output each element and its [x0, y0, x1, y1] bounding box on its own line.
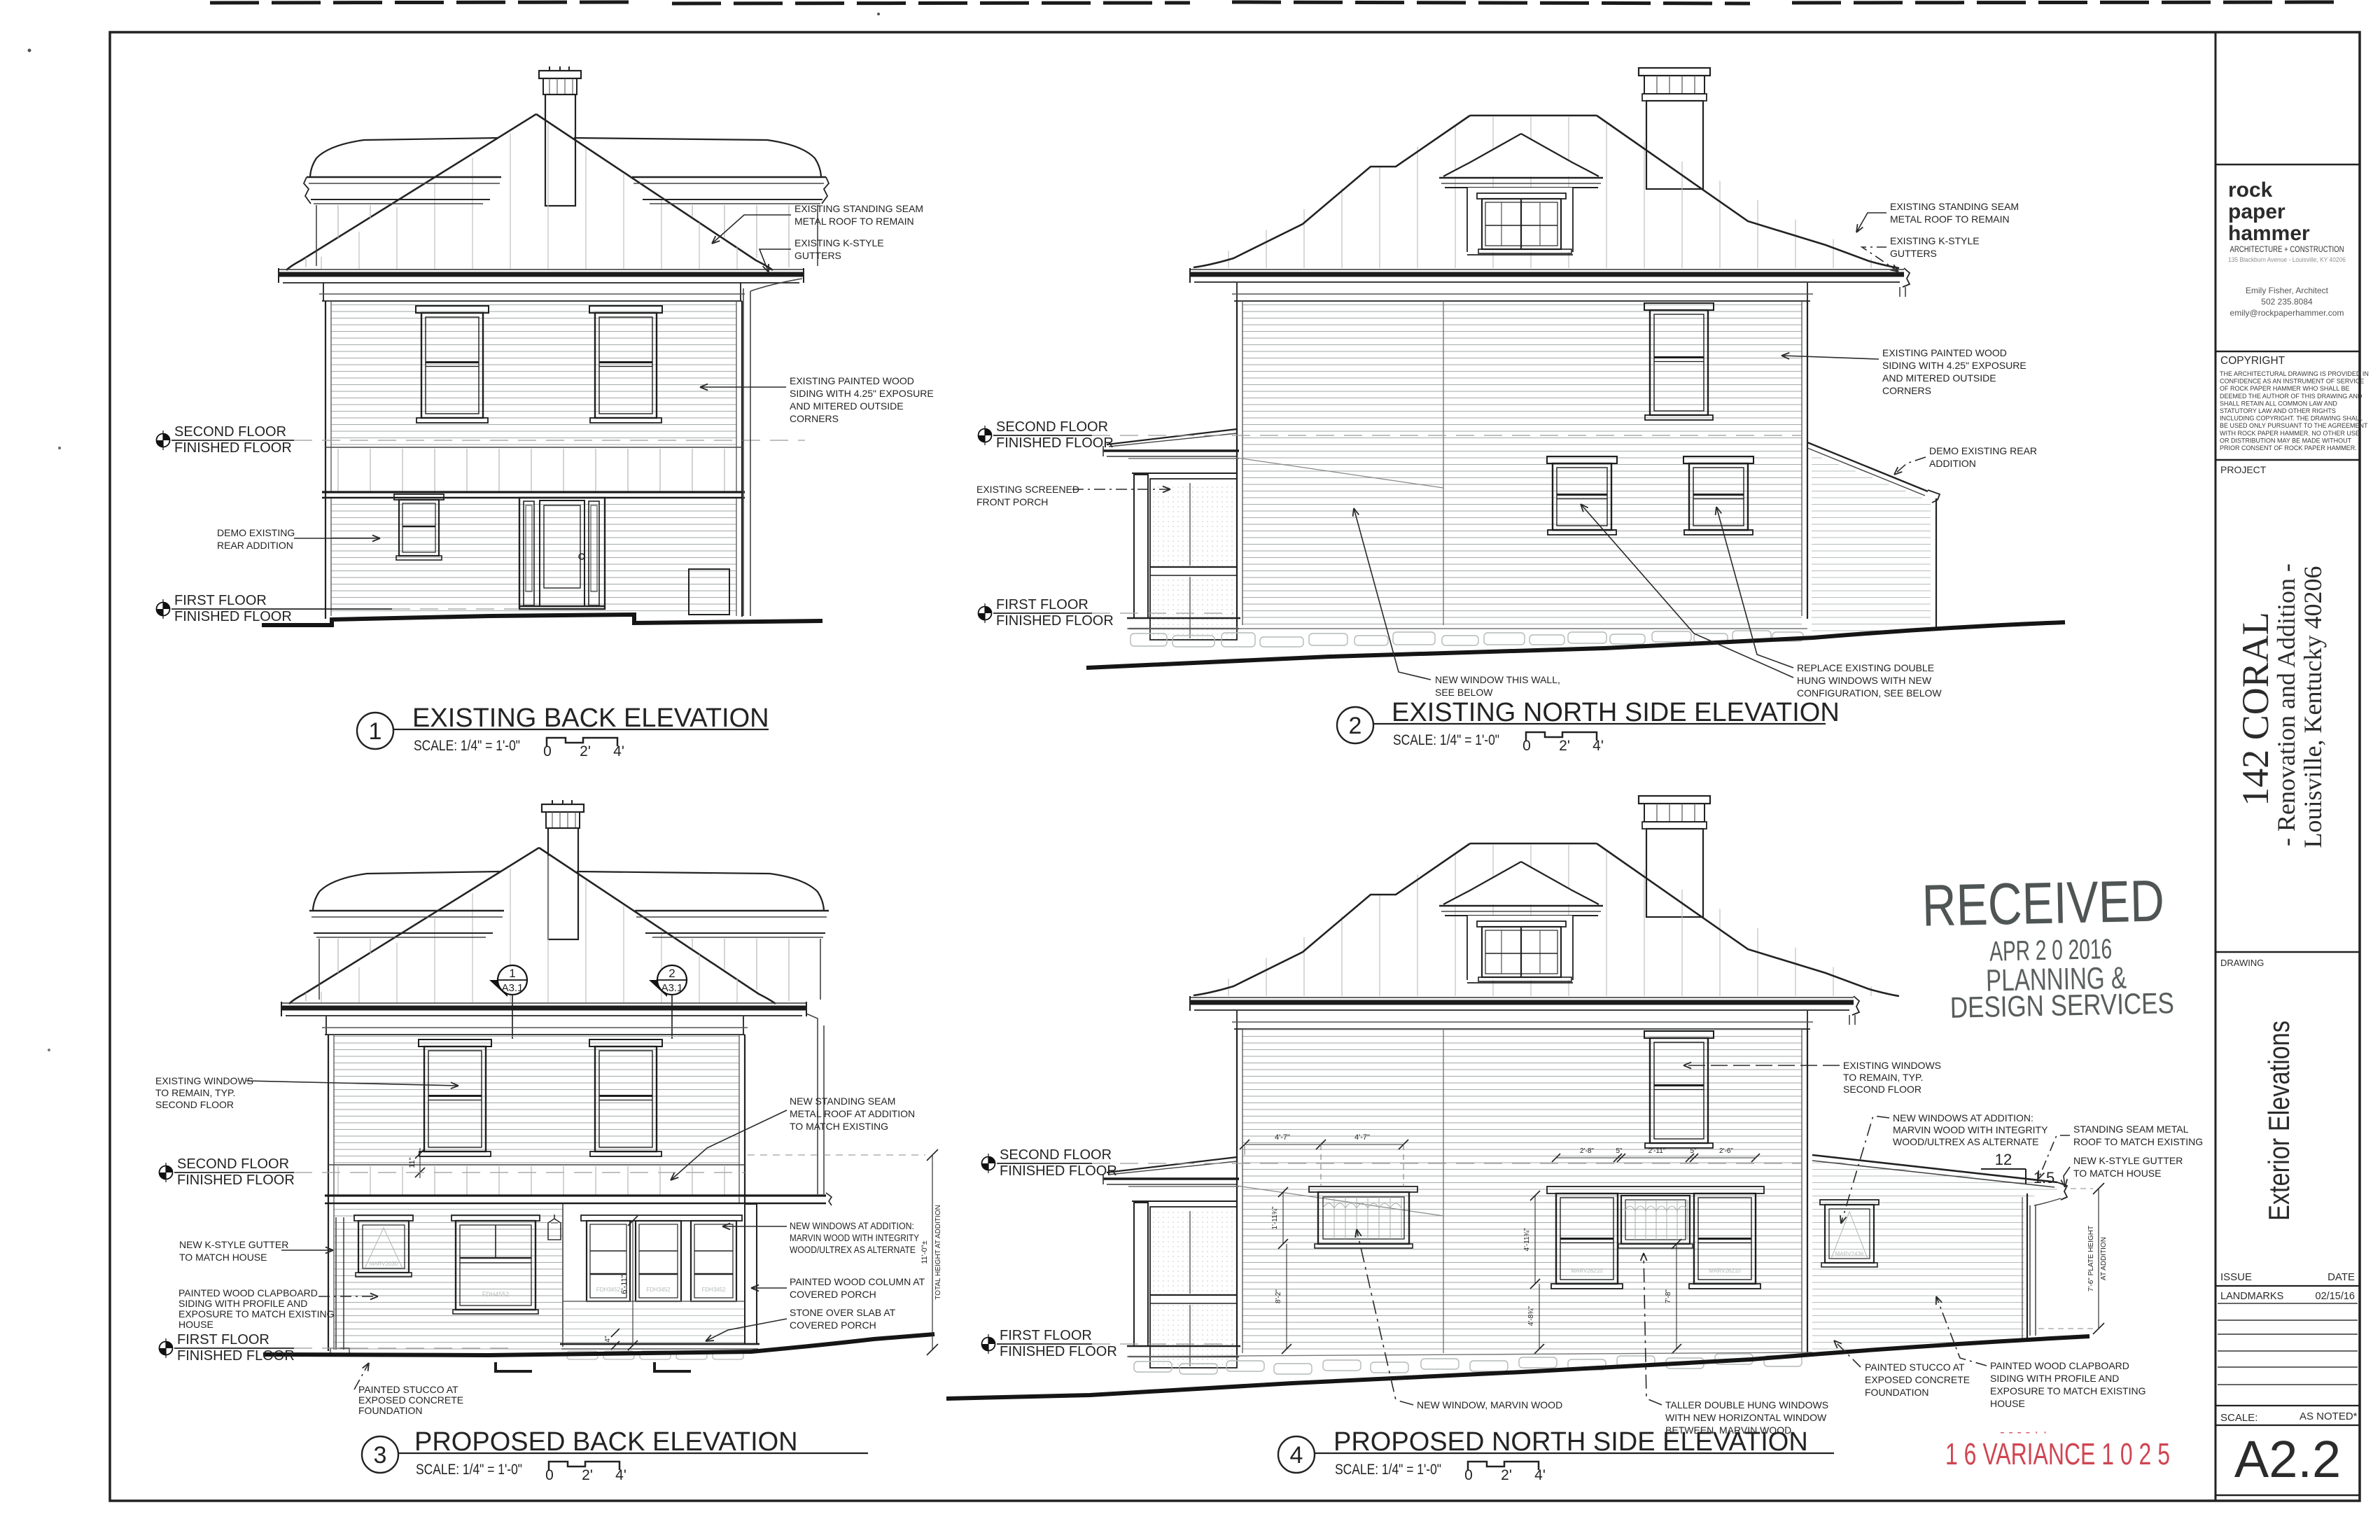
svg-text:4'-7": 4'-7": [1275, 1133, 1290, 1142]
svg-text:FIRST FLOOR: FIRST FLOOR: [1000, 1328, 1092, 1343]
svg-text:4': 4': [1534, 1467, 1546, 1483]
svg-text:AT ADDITION: AT ADDITION: [2100, 1237, 2108, 1280]
svg-text:EXPOSURE TO MATCH EXISTING: EXPOSURE TO MATCH EXISTING: [1990, 1385, 2145, 1396]
svg-text:NEW K-STYLE GUTTER: NEW K-STYLE GUTTER: [2073, 1155, 2183, 1166]
svg-text:FDH3452: FDH3452: [646, 1287, 671, 1293]
svg-text:FIRST FLOOR: FIRST FLOOR: [996, 597, 1088, 612]
svg-text:NEW WINDOW THIS WALL,: NEW WINDOW THIS WALL,: [1435, 674, 1560, 685]
svg-text:ROOF TO MATCH EXISTING: ROOF TO MATCH EXISTING: [2073, 1136, 2203, 1147]
svg-text:TO MATCH EXISTING: TO MATCH EXISTING: [790, 1121, 888, 1132]
svg-text:1 6 VARIANCE 1 0 2 5: 1 6 VARIANCE 1 0 2 5: [1945, 1437, 2170, 1471]
svg-text:EXPOSED CONCRETE: EXPOSED CONCRETE: [358, 1394, 463, 1406]
svg-text:0: 0: [543, 743, 552, 759]
svg-text:DEEMED THE AUTHOR OF THIS DRAW: DEEMED THE AUTHOR OF THIS DRAWING AND: [2220, 393, 2362, 400]
svg-text:THE ARCHITECTURAL DRAWING IS P: THE ARCHITECTURAL DRAWING IS PROVIDED IN: [2220, 370, 2369, 377]
svg-text:FINISHED FLOOR: FINISHED FLOOR: [1000, 1344, 1117, 1359]
svg-text:4': 4': [1592, 738, 1604, 754]
svg-text:4'-7": 4'-7": [1354, 1133, 1370, 1142]
svg-text:DEMO EXISTING: DEMO EXISTING: [217, 527, 295, 538]
svg-text:PAINTED WOOD COLUMN AT: PAINTED WOOD COLUMN AT: [790, 1276, 925, 1287]
svg-text:PROPOSED NORTH SIDE ELEVATION: PROPOSED NORTH SIDE ELEVATION: [1333, 1427, 1808, 1457]
svg-text:OR DISTRIBUTION MAY BE MADE WI: OR DISTRIBUTION MAY BE MADE WITHOUT: [2220, 437, 2352, 444]
svg-text:Louisville, Kentucky 40206: Louisville, Kentucky 40206: [2299, 566, 2327, 848]
svg-text:4': 4': [613, 743, 624, 759]
svg-text:EXPOSED CONCRETE: EXPOSED CONCRETE: [1865, 1374, 1970, 1385]
svg-text:EXISTING NORTH SIDE ELEVATION: EXISTING NORTH SIDE ELEVATION: [1392, 698, 1840, 727]
svg-text:TO REMAIN, TYP.: TO REMAIN, TYP.: [155, 1087, 235, 1098]
svg-text:1: 1: [509, 967, 515, 980]
svg-text:FRONT PORCH: FRONT PORCH: [976, 496, 1048, 507]
svg-text:2: 2: [1349, 713, 1362, 739]
svg-text:EXISTING PAINTED WOOD: EXISTING PAINTED WOOD: [790, 375, 914, 386]
svg-text:A3.1: A3.1: [661, 982, 683, 994]
svg-text:FDH4552: FDH4552: [482, 1291, 510, 1298]
svg-text:NEW WINDOW, MARVIN WOOD: NEW WINDOW, MARVIN WOOD: [1417, 1399, 1562, 1410]
svg-text:TALLER DOUBLE HUNG WINDOWS: TALLER DOUBLE HUNG WINDOWS: [1665, 1399, 1828, 1410]
svg-text:2': 2': [582, 1467, 593, 1483]
svg-text:SHALL RETAIN ALL COMMON LAW AN: SHALL RETAIN ALL COMMON LAW AND: [2220, 400, 2337, 407]
svg-text:SCALE: 1/4" = 1'-0": SCALE: 1/4" = 1'-0": [1393, 732, 1499, 748]
svg-text:Emily Fisher, Architect: Emily Fisher, Architect: [2246, 286, 2329, 295]
svg-text:HOUSE: HOUSE: [178, 1319, 213, 1330]
svg-text:2': 2': [1501, 1467, 1512, 1483]
svg-text:0: 0: [545, 1467, 554, 1483]
svg-text:NEW K-STYLE GUTTER: NEW K-STYLE GUTTER: [179, 1239, 288, 1250]
svg-text:ARCHITECTURE + CONSTRUCTION: ARCHITECTURE + CONSTRUCTION: [2230, 246, 2344, 254]
svg-text:8'-2": 8'-2": [1275, 1289, 1282, 1303]
svg-text:SCALE: 1/4" = 1'-0": SCALE: 1/4" = 1'-0": [1335, 1462, 1441, 1478]
svg-text:RECEIVED: RECEIVED: [1921, 867, 2165, 938]
svg-text:2'-11": 2'-11": [1648, 1147, 1666, 1155]
svg-text:SIDING WITH PROFILE AND: SIDING WITH PROFILE AND: [178, 1298, 307, 1309]
svg-text:SCALE:: SCALE:: [2220, 1412, 2257, 1424]
svg-text:MARV2436: MARV2436: [1835, 1251, 1864, 1257]
svg-text:AS NOTED*: AS NOTED*: [2299, 1410, 2358, 1422]
svg-text:3: 3: [374, 1442, 387, 1469]
svg-text:DRAWING: DRAWING: [2220, 958, 2264, 968]
svg-text:DATE: DATE: [2327, 1271, 2355, 1283]
svg-text:SECOND FLOOR: SECOND FLOOR: [177, 1156, 289, 1172]
svg-text:1.5: 1.5: [2033, 1169, 2055, 1186]
svg-text:WOOD/ULTREX AS ALTERNATE: WOOD/ULTREX AS ALTERNATE: [1893, 1136, 2038, 1147]
svg-text:2': 2': [1559, 738, 1570, 754]
svg-text:EXISTING K-STYLE: EXISTING K-STYLE: [794, 237, 884, 248]
svg-text:FINISHED FLOOR: FINISHED FLOOR: [177, 1172, 295, 1188]
svg-text:FIRST FLOOR: FIRST FLOOR: [174, 593, 267, 608]
svg-text:A2.2: A2.2: [2234, 1430, 2341, 1488]
svg-text:NEW STANDING SEAM: NEW STANDING SEAM: [790, 1095, 895, 1107]
svg-text:SECOND FLOOR: SECOND FLOOR: [996, 419, 1108, 435]
svg-text:SECOND FLOOR: SECOND FLOOR: [1000, 1147, 1112, 1163]
svg-text:FIRST FLOOR: FIRST FLOOR: [177, 1332, 269, 1347]
svg-text:5": 5": [1616, 1147, 1623, 1155]
svg-text:CORNERS: CORNERS: [790, 413, 839, 424]
svg-text:4'-8¾": 4'-8¾": [1527, 1305, 1535, 1326]
svg-text:FINISHED FLOOR: FINISHED FLOOR: [996, 613, 1114, 629]
svg-text:4': 4': [615, 1467, 626, 1483]
svg-text:COVERED PORCH: COVERED PORCH: [790, 1289, 876, 1300]
svg-text:TO REMAIN, TYP.: TO REMAIN, TYP.: [1843, 1072, 1923, 1083]
svg-text:- Renovation and Addition -: - Renovation and Addition -: [2272, 563, 2300, 846]
svg-text:ISSUE: ISSUE: [2220, 1271, 2252, 1283]
svg-text:MARVIN WOOD WITH INTEGRITY: MARVIN WOOD WITH INTEGRITY: [1893, 1124, 2048, 1135]
svg-text:TO MATCH HOUSE: TO MATCH HOUSE: [2073, 1168, 2162, 1179]
svg-text:SIDING WITH 4.25" EXPOSURE: SIDING WITH 4.25" EXPOSURE: [790, 388, 934, 399]
svg-text:SECOND FLOOR: SECOND FLOOR: [155, 1099, 234, 1110]
svg-text:EXPOSURE TO MATCH EXISTING: EXPOSURE TO MATCH EXISTING: [178, 1308, 334, 1319]
svg-text:FINISHED FLOOR: FINISHED FLOOR: [1000, 1163, 1117, 1179]
svg-text:FOUNDATION: FOUNDATION: [358, 1405, 423, 1416]
svg-text:11'-0"±: 11'-0"±: [920, 1240, 929, 1263]
svg-text:Exterior Elevations: Exterior Elevations: [2262, 1021, 2295, 1221]
svg-text:502 235.8084: 502 235.8084: [2261, 297, 2313, 307]
svg-text:7'-8": 7'-8": [1665, 1289, 1672, 1303]
svg-text:CONFIGURATION, SEE BELOW: CONFIGURATION, SEE BELOW: [1797, 687, 1942, 699]
svg-text:PROPOSED BACK ELEVATION: PROPOSED BACK ELEVATION: [414, 1427, 798, 1457]
svg-text:AND MITERED OUTSIDE: AND MITERED OUTSIDE: [1882, 372, 1996, 384]
svg-text:FINISHED FLOOR: FINISHED FLOOR: [174, 609, 292, 624]
svg-text:GUTTERS: GUTTERS: [794, 250, 841, 261]
svg-text:2'-8": 2'-8": [1580, 1147, 1594, 1155]
svg-text:142 CORAL: 142 CORAL: [2234, 612, 2276, 806]
svg-text:WITH NEW HORIZONTAL WINDOW: WITH NEW HORIZONTAL WINDOW: [1665, 1412, 1827, 1423]
svg-text:METAL ROOF TO REMAIN: METAL ROOF TO REMAIN: [794, 216, 914, 227]
svg-text:2: 2: [668, 967, 675, 980]
svg-text:ADDITION: ADDITION: [1929, 458, 1976, 469]
svg-text:PAINTED STUCCO AT: PAINTED STUCCO AT: [1865, 1361, 1965, 1373]
svg-text:REAR ADDITION: REAR ADDITION: [217, 540, 293, 551]
svg-text:SECOND FLOOR: SECOND FLOOR: [1843, 1084, 1921, 1095]
svg-text:NEW WINDOWS AT ADDITION:: NEW WINDOWS AT ADDITION:: [1893, 1112, 2033, 1123]
svg-text:EXISTING SCREENED: EXISTING SCREENED: [976, 484, 1079, 495]
svg-text:HOUSE: HOUSE: [1990, 1398, 2025, 1409]
svg-text:PRIOR CONSENT OF ROCK PAPER HA: PRIOR CONSENT OF ROCK PAPER HAMMER.: [2220, 444, 2357, 451]
svg-text:hammer: hammer: [2228, 222, 2310, 245]
svg-text:FINISHED FLOOR: FINISHED FLOOR: [996, 435, 1114, 451]
svg-text:NEW WINDOWS AT ADDITION:: NEW WINDOWS AT ADDITION:: [790, 1221, 914, 1231]
svg-text:OF ROCK PAPER HAMMER WHO SHALL: OF ROCK PAPER HAMMER WHO SHALL BE: [2220, 385, 2350, 392]
svg-text:02/15/16: 02/15/16: [2316, 1291, 2355, 1302]
svg-text:CORNERS: CORNERS: [1882, 385, 1931, 396]
svg-text:BE USED ONLY PURSUANT TO THE A: BE USED ONLY PURSUANT TO THE AGREEMENT: [2220, 422, 2368, 429]
svg-text:6'-11": 6'-11": [620, 1275, 629, 1294]
svg-text:SEE BELOW: SEE BELOW: [1435, 687, 1493, 698]
svg-text:LANDMARKS: LANDMARKS: [2220, 1291, 2283, 1302]
svg-text:EXISTING STANDING SEAM: EXISTING STANDING SEAM: [794, 203, 923, 214]
svg-text:STANDING SEAM METAL: STANDING SEAM METAL: [2073, 1123, 2189, 1135]
svg-text:MARV26210: MARV26210: [1571, 1268, 1603, 1274]
svg-text:PROJECT: PROJECT: [2220, 464, 2267, 475]
svg-text:GUTTERS: GUTTERS: [1890, 248, 1937, 259]
svg-text:INCLUDING COPYRIGHT. THE DRAW: INCLUDING COPYRIGHT. THE DRAWING SHALL: [2220, 415, 2362, 422]
svg-text:EXISTING WINDOWS: EXISTING WINDOWS: [155, 1075, 253, 1086]
svg-text:SIDING WITH PROFILE AND: SIDING WITH PROFILE AND: [1990, 1373, 2119, 1384]
svg-text:WITH ROCK PAPER HAMMER. NO OTH: WITH ROCK PAPER HAMMER. NO OTHER USE: [2220, 430, 2360, 437]
svg-text:DESIGN SERVICES: DESIGN SERVICES: [1949, 986, 2174, 1024]
svg-text:MARV2030: MARV2030: [370, 1261, 398, 1267]
svg-text:EXISTING K-STYLE: EXISTING K-STYLE: [1890, 235, 1980, 246]
svg-text:COPYRIGHT: COPYRIGHT: [2220, 355, 2285, 367]
svg-text:SCALE: 1/4" = 1'-0": SCALE: 1/4" = 1'-0": [414, 738, 520, 754]
svg-text:FDH3452: FDH3452: [596, 1287, 621, 1293]
svg-text:4'-11¾": 4'-11¾": [1523, 1228, 1531, 1252]
svg-text:1'-11¾": 1'-11¾": [1271, 1206, 1279, 1230]
svg-text:METAL ROOF TO REMAIN: METAL ROOF TO REMAIN: [1890, 213, 2010, 225]
svg-text:135 Blackburn Avenue - Louis: 135 Blackburn Avenue - Louisville, KY 40…: [2228, 256, 2346, 264]
svg-text:4: 4: [1290, 1442, 1303, 1469]
svg-text:EXISTING PAINTED WOOD: EXISTING PAINTED WOOD: [1882, 347, 2007, 358]
svg-text:TOTAL HEIGHT AT ADDITION: TOTAL HEIGHT AT ADDITION: [934, 1205, 942, 1299]
svg-text:emily@rockpaperhammer.com: emily@rockpaperhammer.com: [2230, 308, 2344, 318]
svg-text:0: 0: [1522, 738, 1531, 754]
svg-text:MARV26210: MARV26210: [1709, 1268, 1741, 1274]
svg-text:7'-6" PLATE HEIGHT: 7'-6" PLATE HEIGHT: [2087, 1226, 2095, 1291]
svg-text:1: 1: [369, 718, 382, 745]
svg-text:EXISTING WINDOWS: EXISTING WINDOWS: [1843, 1060, 1941, 1071]
svg-text:2'-6": 2'-6": [1719, 1147, 1733, 1155]
svg-text:EXISTING STANDING SEAM: EXISTING STANDING SEAM: [1890, 201, 2019, 212]
svg-text:0: 0: [1464, 1467, 1473, 1483]
svg-text:FDH3452: FDH3452: [701, 1287, 726, 1293]
svg-text:STONE OVER SLAB AT: STONE OVER SLAB AT: [790, 1307, 896, 1318]
svg-text:AND MITERED OUTSIDE: AND MITERED OUTSIDE: [790, 400, 904, 412]
svg-text:SCALE: 1/4" = 1'-0": SCALE: 1/4" = 1'-0": [416, 1462, 522, 1478]
svg-text:METAL ROOF AT ADDITION: METAL ROOF AT ADDITION: [790, 1108, 915, 1119]
svg-text:A3.1: A3.1: [502, 982, 524, 994]
svg-text:paper: paper: [2228, 200, 2285, 223]
svg-text:FINISHED FLOOR: FINISHED FLOOR: [174, 440, 292, 456]
svg-text:COVERED PORCH: COVERED PORCH: [790, 1319, 876, 1331]
svg-text:TO MATCH HOUSE: TO MATCH HOUSE: [179, 1252, 267, 1263]
svg-text:2': 2': [580, 743, 591, 759]
svg-text:REPLACE EXISTING DOUBLE: REPLACE EXISTING DOUBLE: [1797, 662, 1934, 673]
svg-text:CONFIDENCE AS AN INSTRUMENT OF: CONFIDENCE AS AN INSTRUMENT OF SERVICE: [2220, 378, 2364, 385]
svg-text:DEMO EXISTING REAR: DEMO EXISTING REAR: [1929, 445, 2037, 456]
svg-text:PAINTED STUCCO AT: PAINTED STUCCO AT: [358, 1384, 458, 1395]
svg-text:SECOND FLOOR: SECOND FLOOR: [174, 424, 286, 440]
svg-text:12: 12: [1995, 1151, 2012, 1168]
svg-text:PAINTED WOOD CLAPBOARD: PAINTED WOOD CLAPBOARD: [1990, 1360, 2129, 1371]
svg-text:5": 5": [1690, 1147, 1697, 1155]
svg-text:FOUNDATION: FOUNDATION: [1865, 1387, 1929, 1398]
svg-text:HUNG WINDOWS WITH NEW: HUNG WINDOWS WITH NEW: [1797, 675, 1932, 686]
svg-text:rock: rock: [2228, 178, 2273, 202]
svg-text:PAINTED WOOD CLAPBOARD: PAINTED WOOD CLAPBOARD: [178, 1287, 318, 1298]
svg-text:4": 4": [604, 1336, 612, 1343]
svg-text:MARVIN WOOD WITH INTEGRITY: MARVIN WOOD WITH INTEGRITY: [790, 1233, 919, 1243]
svg-text:FINISHED FLOOR: FINISHED FLOOR: [177, 1348, 295, 1364]
svg-text:STATUTORY LAW AND OTHER RIGHTS: STATUTORY LAW AND OTHER RIGHTS: [2220, 407, 2336, 414]
svg-text:SIDING WITH 4.25" EXPOSURE: SIDING WITH 4.25" EXPOSURE: [1882, 360, 2026, 371]
svg-text:WOOD/ULTREX AS ALTERNATE: WOOD/ULTREX AS ALTERNATE: [790, 1245, 916, 1255]
svg-text:EXISTING BACK ELEVATION: EXISTING BACK ELEVATION: [412, 703, 769, 733]
